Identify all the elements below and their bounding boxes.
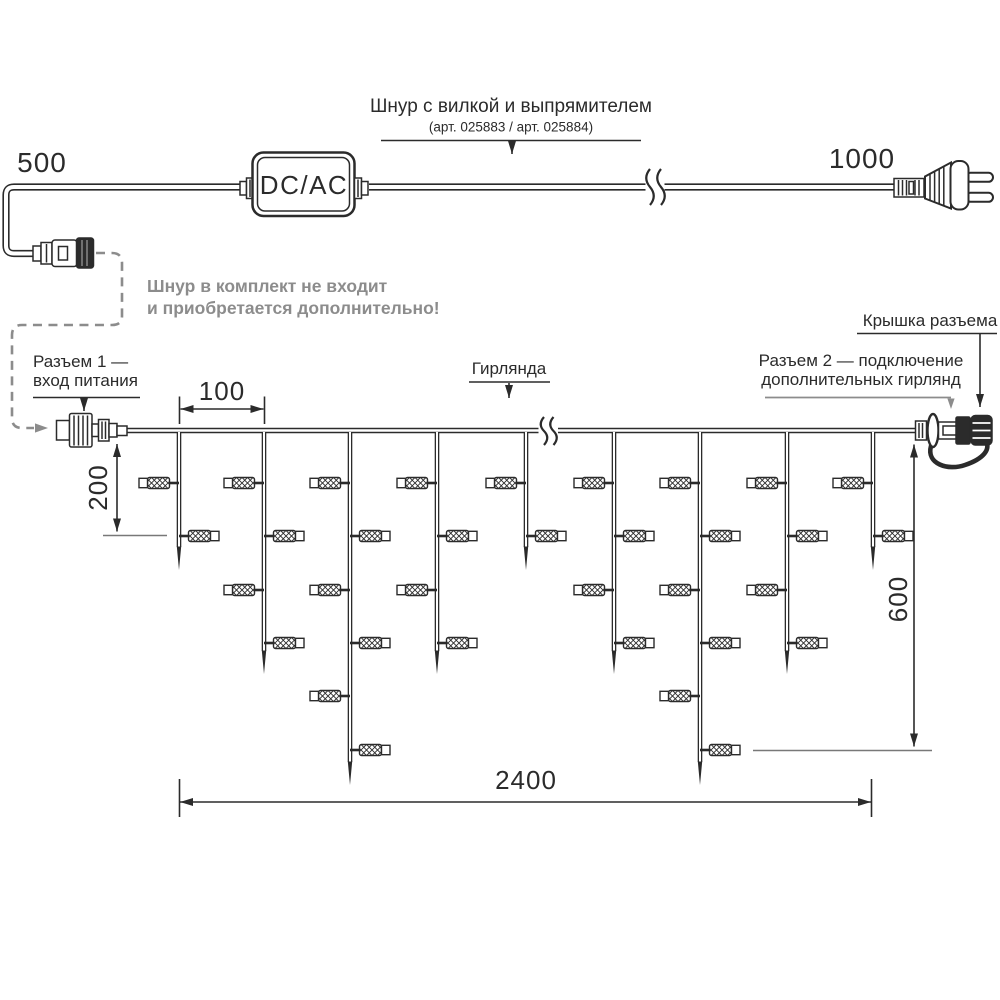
not-included-note-line2: и приобретается дополнительно!: [147, 298, 440, 318]
not-included-note-line1: Шнур в комплект не входит: [147, 276, 388, 296]
garland-schematic: 500 1000 DC/AC Шнур с вилкой и выпрямите…: [0, 0, 1000, 1000]
connector-2: [916, 414, 993, 467]
connector1-label-line2: вход питания: [33, 371, 138, 390]
dim-200-value: 200: [83, 464, 113, 510]
icicle-drops: [139, 432, 913, 785]
dim-2400-value: 2400: [495, 765, 557, 795]
wire-break-icon: [541, 417, 557, 445]
cord-end-connector: [33, 238, 94, 268]
cord-break-icon: [646, 169, 665, 205]
connector2-label-line1: Разъем 2 — подключение: [759, 351, 964, 370]
power-plug-icon: [894, 161, 993, 210]
garland-label: Гирлянда: [472, 359, 547, 378]
cord-article: (арт. 025883 / арт. 025884): [429, 120, 593, 135]
converter-label: DC/AC: [260, 170, 348, 200]
connector-cap-label: Крышка разъема: [863, 311, 998, 330]
cord-wire: [6, 187, 895, 254]
dim-600-value: 600: [883, 576, 913, 622]
dashed-arrowhead: [35, 423, 48, 432]
connector-cap: [971, 416, 992, 446]
cord-title: Шнур с вилкой и выпрямителем: [370, 96, 652, 117]
connector2-arrowhead: [947, 399, 954, 410]
garland-assembly: [57, 414, 993, 786]
connector2-label-line2: дополнительных гирлянд: [761, 370, 961, 389]
text-layer: 500 1000 DC/AC Шнур с вилкой и выпрямите…: [17, 96, 998, 795]
cord-length-left-label: 500: [17, 147, 67, 178]
connector1-label-line1: Разъем 1 —: [33, 352, 128, 371]
dim-100-value: 100: [199, 376, 245, 406]
not-included-dashed-path: [12, 253, 122, 428]
gray-annotations: [12, 253, 955, 751]
connector-1: [57, 414, 128, 448]
diagram-page: 500 1000 DC/AC Шнур с вилкой и выпрямите…: [0, 0, 1000, 1000]
cord-length-right-label: 1000: [829, 143, 895, 174]
